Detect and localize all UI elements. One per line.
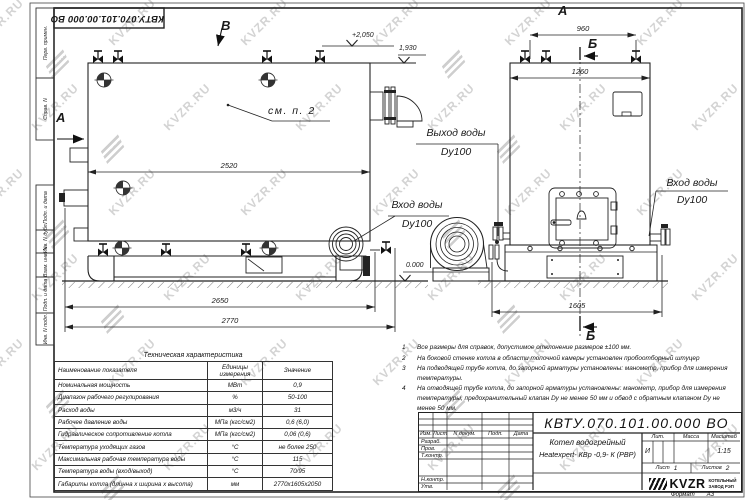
product-name-line2: Heatexpert- КВр -0,9- К (РВР)	[533, 450, 642, 461]
col-podp: Подп.	[482, 431, 509, 438]
callout-water-inlet-main-dn: Dy100	[384, 218, 450, 230]
elevation-1930: 1,930	[399, 45, 417, 52]
col-data: Дата	[509, 431, 533, 438]
note-item: 4На отводящей трубе котла, до запорной а…	[402, 384, 738, 413]
col-dok: N докум.	[447, 431, 482, 438]
front-view-base	[505, 245, 657, 281]
scale-label: Масштаб	[708, 434, 740, 441]
drawing-sheet: KVZR.RUKVZR.RUKVZR.RUKVZR.RUKVZR.RUKVZR.…	[0, 0, 750, 500]
title-block-doc-number: КВТУ.070.101.00.000 ВО	[533, 413, 740, 433]
dim-1260: 1260	[510, 67, 650, 76]
view-label-v: В	[221, 18, 230, 33]
table-row: Номинальная мощностьМВт0,9	[55, 380, 333, 392]
row-razrab: Разраб.	[421, 439, 447, 445]
ground-line-right	[478, 281, 668, 288]
table-row: Температура воды (вход/выход)°С70/95	[55, 466, 333, 478]
outlet-piping	[370, 87, 422, 127]
col-izm: Изм.	[419, 431, 433, 438]
table-row: Максимальная рабочая температура воды°С1…	[55, 453, 333, 465]
section-label-b-bottom: Б	[586, 328, 595, 343]
table-row: Габариты котла (длинна х ширина х высота…	[55, 478, 333, 490]
sheet-cell: Лист1	[642, 463, 691, 473]
top-stamp-doc-number: КВТУ.070.101.00.000 ВО	[54, 8, 164, 28]
col-units: Единицы измерения	[208, 362, 263, 380]
elevation-2050: +2,050	[352, 32, 374, 39]
title-block: Изм. Лист N докум. Подп. Дата Разраб. Пр…	[418, 412, 742, 492]
callout-water-inlet-main: Вход воды	[384, 199, 450, 211]
front-dimensions	[492, 35, 662, 317]
dim-2770: 2770	[65, 316, 395, 325]
kvzr-logo-text: KVZR	[670, 477, 706, 491]
sheets-cell: Листов2	[691, 463, 740, 473]
kvzr-logo-icon	[649, 478, 667, 490]
inspection-panel	[613, 92, 642, 116]
table-row: Температура уходящих газов°Сне более 250	[55, 441, 333, 453]
col-list: Лист	[433, 431, 447, 438]
lit-label: Лит.	[642, 434, 674, 441]
tech-table-title: Техническая характеристика	[54, 352, 332, 359]
door-latch	[577, 211, 586, 219]
callout-water-outlet-dn: Dy100	[414, 146, 498, 158]
section-label-a-left: А	[56, 110, 65, 125]
furnace-door	[549, 188, 617, 248]
scale-value: 1:15	[708, 441, 740, 463]
table-row: Диапазон рабочего регулирования%50-100	[55, 392, 333, 404]
ground-line-main	[62, 281, 428, 288]
dim-2520: 2520	[88, 161, 370, 170]
kvzr-logo-subtitle: КОТЕЛЬНЫЙ ЗАВОД РЭП	[709, 478, 737, 488]
tech-table: Наименование показателя Единицы измерени…	[54, 361, 333, 491]
row-nkontr: Н.контр.	[421, 477, 447, 483]
note-item: 1Все размеры для справок, допустимое отк…	[402, 343, 738, 353]
view-label-a-top: А	[558, 3, 567, 18]
dim-2650: 2650	[65, 296, 375, 305]
row-prov: Пров.	[421, 446, 447, 452]
note-item: 3На подводящей трубе котла, до запорной …	[402, 364, 738, 383]
row-utv: Утв.	[421, 484, 447, 490]
dim-960: 960	[530, 24, 636, 33]
callout-see-note-2: см. п. 2	[268, 105, 316, 117]
margin-label-sprav-n: Справ. N	[38, 78, 54, 140]
tech-characteristics: Техническая характеристика Наименование …	[54, 352, 332, 491]
margin-label-vzam-inv: Взам. инв. N	[38, 253, 54, 277]
row-tkontr: Т.контр.	[421, 453, 447, 459]
elevation-0000: 0.000	[406, 262, 424, 269]
margin-label-podp-data-2: Подп. и дата	[38, 277, 54, 313]
table-row: Расход водым3/ч31	[55, 404, 333, 416]
callout-water-inlet-right-dn: Dy100	[654, 194, 730, 206]
col-parameter: Наименование показателя	[55, 362, 208, 380]
col-value: Значение	[263, 362, 333, 380]
product-name-line1: Котел водогрейный	[533, 438, 642, 450]
lit-value: И	[642, 441, 653, 463]
main-view-valves	[93, 51, 391, 256]
drawing-notes: 1Все размеры для справок, допустимое отк…	[402, 343, 738, 414]
callout-water-outlet: Выход воды	[414, 127, 498, 139]
margin-label-inv-podl: Инв. N подл.	[38, 313, 54, 345]
table-row: Рабочее давление водыМПа (кгс/см2)0,6 (6…	[55, 416, 333, 428]
tech-table-header: Наименование показателя Единицы измерени…	[55, 362, 333, 380]
dim-1605: 1605	[492, 301, 662, 310]
front-right-fitting	[650, 224, 670, 245]
main-dimensions	[65, 172, 395, 332]
section-label-b-top: Б	[588, 36, 597, 51]
margin-label-perv-primen: Перв. примен.	[38, 8, 54, 78]
format-label: Формат А3	[645, 492, 740, 498]
table-row: Гидравлическое сопротивление котлаМПа (к…	[55, 429, 333, 441]
boiler-front-view	[489, 50, 670, 338]
callout-water-inlet-right: Вход воды	[654, 177, 730, 189]
note-item: 2На боковой стенке котла в области топоч…	[402, 354, 738, 364]
mass-label: Масса	[674, 434, 708, 441]
manufacturer-logo: KVZR КОТЕЛЬНЫЙ ЗАВОД РЭП	[642, 475, 743, 492]
